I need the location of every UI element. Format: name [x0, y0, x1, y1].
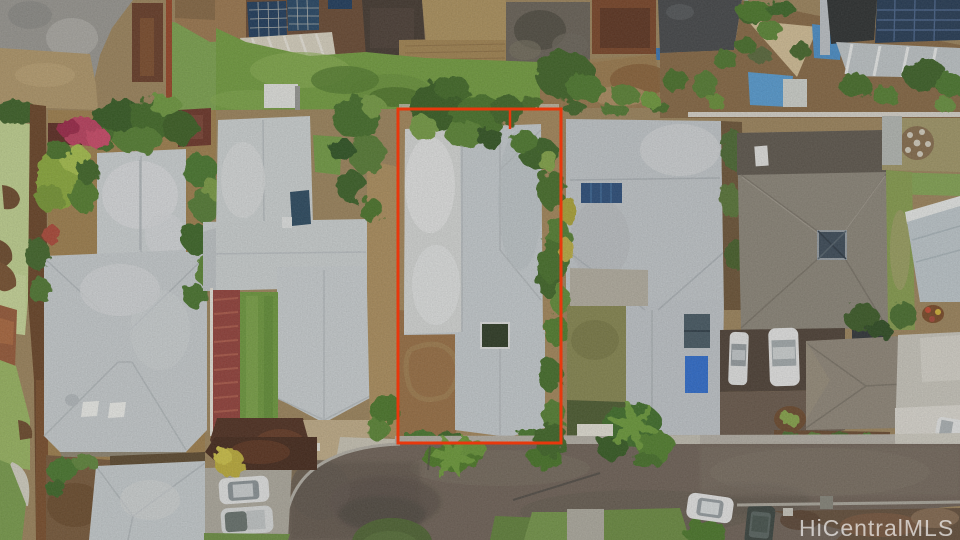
svg-text:HiCentralMLS: HiCentralMLS — [799, 515, 954, 540]
